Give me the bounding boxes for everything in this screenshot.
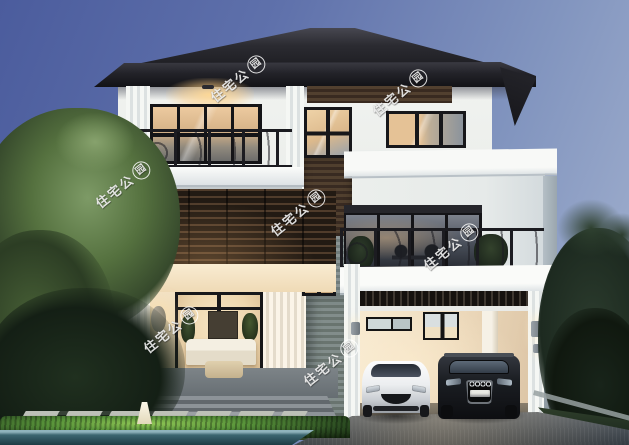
carport-sconce-left (351, 322, 360, 335)
white-sports-car (362, 359, 430, 419)
roof-lower-tier (94, 62, 536, 87)
third-floor-center-window (304, 107, 352, 158)
third-floor-right-window (386, 111, 466, 148)
car-windshield (371, 364, 421, 377)
suv-windshield (449, 360, 509, 374)
audi-rings-icon (469, 381, 491, 387)
license-plate (470, 390, 490, 397)
interior-plant-right (242, 313, 258, 341)
black-suv (438, 351, 520, 423)
wheel-left (363, 405, 372, 417)
roof-upper-tier (122, 28, 502, 67)
suv-wheel-right (505, 405, 517, 418)
ottoman-cushion (205, 361, 243, 378)
tree-left-top (55, 112, 135, 172)
suv-roof-rail (444, 353, 514, 357)
carport-back-window (423, 312, 459, 340)
house-dusk-rendering: 住宅公园住宅公园住宅公园住宅公园住宅公园住宅公园住宅公园 (0, 0, 629, 445)
pool-edge (0, 430, 314, 445)
interior-rear-doors (208, 311, 238, 339)
car-intake (373, 406, 419, 411)
upper-parapet (344, 149, 557, 179)
carport-small-window (366, 317, 412, 331)
wheel-right (420, 405, 429, 417)
suv-wheel-left (441, 405, 453, 418)
